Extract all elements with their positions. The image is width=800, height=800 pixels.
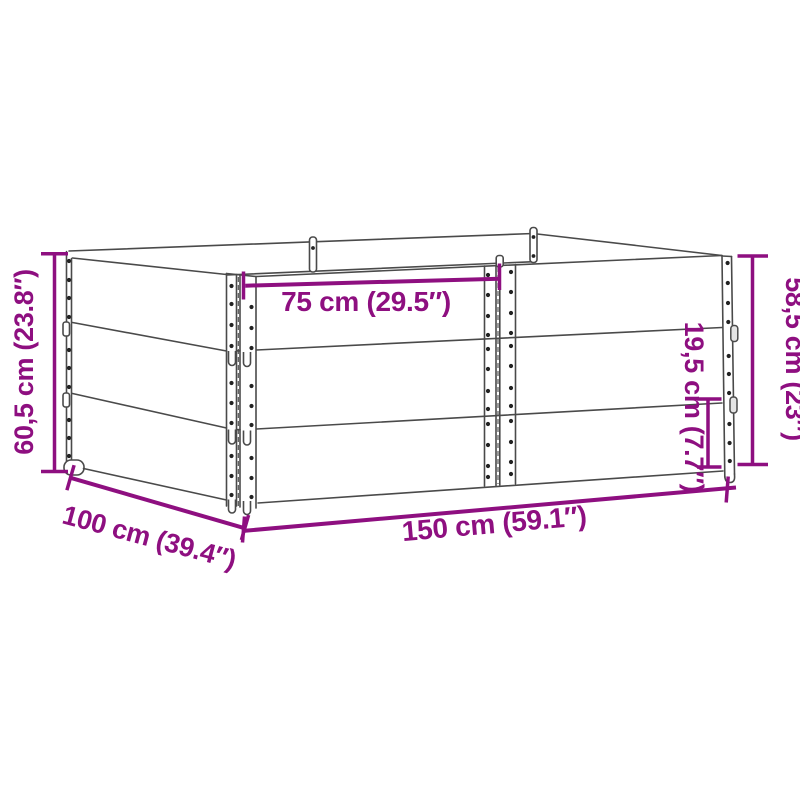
dimension-label-19-5cm: 19,5 cm (7.7″) <box>679 322 709 493</box>
hinge-slot <box>229 351 236 366</box>
nail-dot <box>249 326 253 330</box>
nail-dot <box>67 436 71 440</box>
nail-dot <box>486 314 490 318</box>
nail-dots <box>67 235 732 499</box>
nail-dot <box>486 333 490 337</box>
nail-dot <box>229 493 233 497</box>
nail-dot <box>728 459 732 463</box>
dimension-line <box>245 279 499 286</box>
nail-dot <box>229 284 233 288</box>
nail-dot <box>509 290 513 294</box>
nail-dot <box>727 391 731 395</box>
hinge-knuckle <box>63 322 70 336</box>
nail-dot <box>726 320 730 324</box>
panel-edges <box>69 234 723 504</box>
nail-dot <box>486 273 490 277</box>
back-inner-band-edge <box>227 262 531 275</box>
hinge-knuckle <box>731 326 738 342</box>
dimension-label-75cm: 75 cm (29.5″) <box>281 286 451 317</box>
nail-dot <box>229 344 233 348</box>
nail-dot <box>249 305 253 309</box>
nail-dot <box>249 456 253 460</box>
nail-dot <box>509 331 513 335</box>
nail-dot <box>249 346 253 350</box>
hinge-knuckle <box>730 397 737 413</box>
hinge-slot <box>229 430 236 445</box>
front-seam-1 <box>257 328 723 351</box>
dimension-label-100cm: 100 cm (39.4″) <box>59 500 239 575</box>
nail-dot <box>509 344 513 348</box>
hinge-knuckle <box>63 393 70 407</box>
nail-dot <box>67 315 71 319</box>
nail-dot <box>486 347 490 351</box>
nail-dot <box>229 454 233 458</box>
nail-dot <box>311 246 315 250</box>
nail-dot <box>509 440 513 444</box>
nail-dot <box>229 302 233 306</box>
hinge-back-middle <box>310 237 317 272</box>
hinge-slot <box>244 501 251 515</box>
dimension-label-60-5cm: 60,5 cm (23.8″) <box>9 269 39 455</box>
hinge-slot <box>229 500 236 514</box>
pallet-collar-dimension-diagram: 75 cm (29.5″) 60,5 cm (23.8″) 100 cm (39… <box>0 0 800 800</box>
nail-dot <box>509 311 513 315</box>
dimension-annotations: 75 cm (29.5″) 60,5 cm (23.8″) 100 cm (39… <box>9 254 800 575</box>
dimension-label-150cm: 150 cm (59.1″) <box>401 500 588 547</box>
nail-dot <box>486 475 490 479</box>
dimension-label-58-5cm: 58,5 cm (23″) <box>780 277 800 441</box>
nail-dot <box>67 296 71 300</box>
dimension-60-5cm: 60,5 cm (23.8″) <box>9 254 68 472</box>
nail-dot <box>486 422 490 426</box>
nail-dot <box>67 366 71 370</box>
nail-dot <box>67 454 71 458</box>
nail-dot <box>229 401 233 405</box>
dimension-58-5cm: 58,5 cm (23″) <box>738 256 800 465</box>
dimension-100cm: 100 cm (39.4″) <box>59 465 248 575</box>
hinge-top-knuckle <box>310 237 317 272</box>
nail-dot <box>509 472 513 476</box>
nail-dot <box>509 460 513 464</box>
hinge-front-right-corner <box>722 256 738 483</box>
nail-dot <box>727 372 731 376</box>
nail-dot <box>509 364 513 368</box>
nail-dot <box>727 354 731 358</box>
hinge-slot <box>244 352 251 367</box>
nail-dot <box>67 418 71 422</box>
left-top-edge <box>73 258 227 275</box>
nail-dot <box>67 259 71 263</box>
nail-dot <box>249 423 253 427</box>
nail-dot <box>728 441 732 445</box>
nail-dot <box>509 270 513 274</box>
nail-dot <box>67 348 71 352</box>
hinge-back-left-corner <box>63 252 227 501</box>
nail-dot <box>249 476 253 480</box>
nail-dot <box>532 235 536 239</box>
left-bottom-edge <box>84 469 227 501</box>
nail-dot <box>486 367 490 371</box>
dimension-19-5cm: 19,5 cm (7.7″) <box>679 322 722 493</box>
hinge-slot <box>244 431 251 446</box>
left-seam-2 <box>73 394 227 429</box>
nail-dot <box>726 301 730 305</box>
nail-dot <box>532 254 536 258</box>
nail-dot <box>249 404 253 408</box>
box-drawing <box>63 228 738 515</box>
front-bottom-edge <box>258 471 723 503</box>
right-top-edge <box>533 234 722 256</box>
nail-dot <box>509 404 513 408</box>
nail-dot <box>726 281 730 285</box>
nail-dot <box>249 495 253 499</box>
nail-dot <box>486 443 490 447</box>
nail-dot <box>486 407 490 411</box>
nail-dot <box>726 261 730 265</box>
nail-dot <box>486 464 490 468</box>
nail-dot <box>249 384 253 388</box>
nail-dot <box>509 386 513 390</box>
nail-dot <box>229 421 233 425</box>
back-top-edge <box>69 234 533 252</box>
nail-dot <box>229 474 233 478</box>
left-seam-1 <box>73 323 227 352</box>
nail-dot <box>229 381 233 385</box>
nail-dot <box>486 389 490 393</box>
nail-dot <box>229 323 233 327</box>
nail-dot <box>509 419 513 423</box>
nail-dot <box>727 422 731 426</box>
nail-dot <box>67 278 71 282</box>
nail-dot <box>486 293 490 297</box>
nail-dot <box>67 385 71 389</box>
